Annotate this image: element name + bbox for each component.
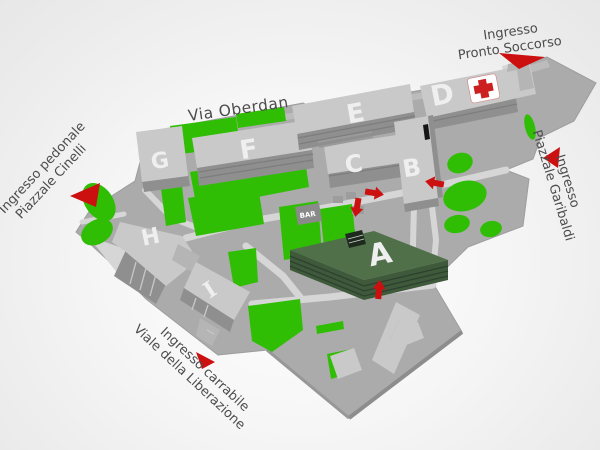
building-g-label: G: [149, 148, 171, 176]
campus-map-svg: G F E D: [0, 0, 600, 450]
emergency-cross-icon: [467, 73, 500, 103]
campus-map: G F E D: [0, 0, 600, 450]
entrance-label-cinelli: Ingresso pedonale Piazzale Cinelli: [0, 119, 100, 227]
svg-text:Ingresso pedonale: Ingresso pedonale: [0, 119, 89, 216]
building-g: G: [136, 126, 190, 192]
entrance-label-garibaldi: Ingresso Piazzale Garibaldi: [529, 124, 591, 243]
